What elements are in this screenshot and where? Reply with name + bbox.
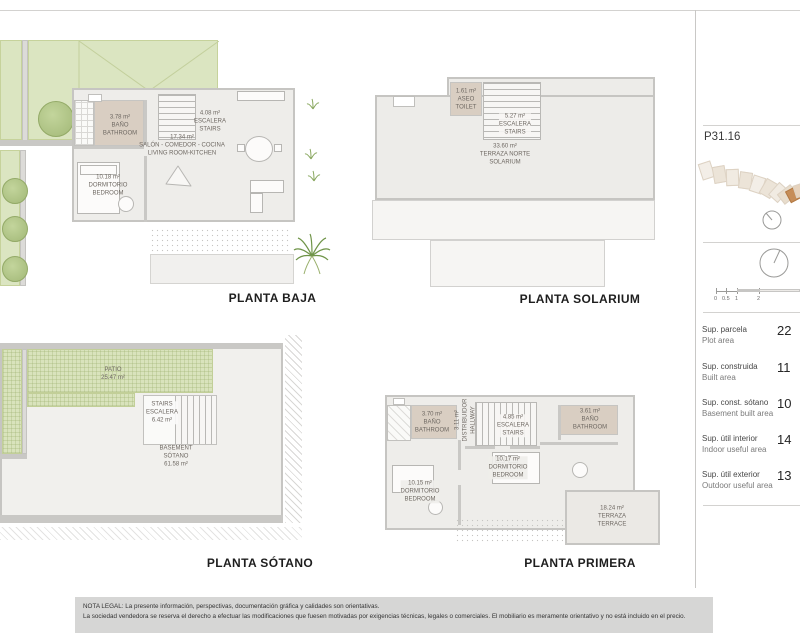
plan-sheet: 3.78 m² BAÑO BATHROOM 4.08 m² ESCALERA S… [0, 0, 800, 640]
title-planta-sotano: PLANTA SÓTANO [180, 556, 340, 570]
room-name-es: ASEO [456, 96, 477, 104]
lounge-chair [163, 164, 193, 190]
room-name-es: DORMITORIO [89, 182, 128, 190]
plan-planta-solarium: 1.61 m² ASEO TOILET 5.27 m² ESCALERA STA… [370, 70, 665, 300]
room-name-es: ESCALERA [499, 121, 531, 129]
room-name-es: BAÑO [573, 416, 607, 424]
room-area: 33.60 m² [480, 143, 530, 151]
plot-id: P31.16 [704, 131, 740, 143]
scale-segment [737, 289, 759, 292]
room-area: 3.61 m² [573, 408, 607, 416]
legal-note: NOTA LEGAL: La presente información, per… [75, 597, 713, 633]
room-label-escalera: STAIRS ESCALERA 6.42 m² [146, 401, 178, 424]
title-planta-solarium: PLANTA SOLARIUM [500, 292, 660, 306]
interior-wall [0, 454, 27, 459]
room-name-es: DORMITORIO [489, 464, 528, 472]
room-area: 10.15 m² [401, 480, 440, 488]
scale-segment [759, 289, 800, 292]
shower-fixture [387, 405, 411, 441]
room-name-en: STAIRS [499, 129, 531, 137]
kitchen-counter [237, 91, 285, 101]
room-name-es: ESCALERA [497, 422, 529, 430]
room-area: 1.61 m² [456, 88, 477, 96]
scale-tick [716, 288, 717, 294]
room-name-es: PATIO [101, 367, 125, 375]
room-label-sotano: BASEMENT SÓTANO 61.58 m² [159, 445, 192, 468]
area-label-en: Basement built area [702, 409, 773, 418]
interior-wall [458, 485, 461, 525]
earth-hatch [0, 527, 302, 540]
room-label-terraza-norte: 33.60 m² TERRAZA NORTE SOLARIUM [480, 143, 530, 166]
north-arrow-icon [760, 208, 784, 232]
room-name-es: SALÓN - COMEDOR - COCINA [139, 142, 225, 150]
room-label-dormitorio1: 10.17 m² DORMITORIO BEDROOM [489, 456, 528, 479]
room-area: 4.85 m² [497, 414, 529, 422]
room-label-escalera: 4.85 m² ESCALERA STAIRS [497, 414, 529, 437]
room-label-dormitorio2: 10.15 m² DORMITORIO BEDROOM [401, 480, 440, 503]
tree-icon [2, 256, 28, 282]
room-name-es: ESCALERA [194, 118, 226, 126]
scale-label: 1 [735, 296, 738, 302]
room-area: 25.47 m² [101, 375, 125, 383]
room-label-bano: 3.78 m² BAÑO BATHROOM [103, 114, 137, 137]
interior-wall [558, 405, 561, 440]
room-label-distribuidor: 3.11 m² DISTRIBUIDOR HALLWAY [454, 398, 477, 441]
legal-line-2: La sociedad vendedora se reserva el dere… [83, 612, 713, 622]
room-area: 4.08 m² [194, 110, 226, 118]
title-planta-baja: PLANTA BAJA [165, 291, 380, 305]
area-value: 13 [777, 468, 791, 483]
area-label-es: Sup. construida [702, 362, 758, 371]
bottom-wall [0, 515, 283, 523]
sofa [250, 180, 284, 193]
stairs-sotano [175, 396, 216, 444]
scale-label: 2 [757, 296, 760, 302]
room-name-en: HALLWAY [470, 398, 478, 441]
interior-wall [465, 446, 495, 449]
interior-wall [540, 442, 618, 445]
north-arrow-icon [757, 246, 791, 280]
area-label-es: Sup. útil interior [702, 434, 758, 443]
tree-icon [2, 216, 28, 242]
room-name-es: DORMITORIO [401, 488, 440, 496]
dining-table [245, 136, 273, 162]
room-area: 61.58 m² [159, 461, 192, 469]
patio-garden [27, 393, 135, 407]
room-name-es: BAÑO [415, 419, 449, 427]
scale-label: 0.5 [722, 296, 730, 302]
planter [572, 462, 588, 478]
room-name-es: TERRAZA NORTE [480, 151, 530, 159]
area-label-es: Sup. parcela [702, 325, 747, 334]
top-rule [0, 10, 800, 11]
sidebar-rule [703, 505, 800, 506]
room-label-escalera: 4.08 m² ESCALERA STAIRS [194, 110, 226, 133]
earth-hatch [285, 335, 302, 523]
shower-fixture [74, 100, 94, 146]
lower-roof [372, 200, 655, 240]
stairs-baja [158, 94, 196, 140]
plot-tile [726, 169, 740, 186]
room-label-terraza: 18.24 m² TERRAZA TERRACE [598, 505, 627, 528]
lower-roof [430, 240, 605, 287]
palm-tree-icon [292, 232, 332, 276]
room-name-en: BEDROOM [401, 496, 440, 504]
area-label-es: Sup. útil exterior [702, 470, 760, 479]
room-area: 6.42 m² [146, 417, 178, 425]
tree-icon [2, 178, 28, 204]
room-name-es: TERRAZA [598, 513, 627, 521]
sofa [250, 193, 263, 213]
room-name-en: BATHROOM [103, 130, 137, 138]
deck-dots [150, 228, 290, 252]
area-value: 10 [777, 396, 791, 411]
scale-tick [726, 288, 727, 294]
room-name-es: SÓTANO [159, 453, 192, 461]
area-value: 11 [777, 360, 791, 375]
room-name-en: STAIRS [146, 401, 178, 409]
room-area: 3.78 m² [103, 114, 137, 122]
room-name-es: BAÑO [103, 122, 137, 130]
plan-planta-primera: 3.70 m² BAÑO BATHROOM 3.11 m² DISTRIBUID… [380, 390, 680, 555]
room-name-en: BEDROOM [489, 472, 528, 480]
room-area: 17.34 m² [139, 134, 225, 142]
interior-wall [74, 146, 144, 149]
room-name-en: STAIRS [497, 430, 529, 438]
sidebar-rule [703, 125, 800, 126]
room-area: 3.70 m² [415, 411, 449, 419]
area-label-es: Sup. const. sótano [702, 398, 768, 407]
chair [274, 144, 282, 152]
room-name-en: BEDROOM [89, 190, 128, 198]
legal-line-1: NOTA LEGAL: La presente información, per… [83, 602, 713, 612]
room-name-es: DISTRIBUIDOR [462, 398, 470, 441]
room-area: 10.17 m² [489, 456, 528, 464]
room-name-en: SOLARIUM [480, 159, 530, 167]
interior-wall [458, 440, 461, 470]
level-tag [88, 94, 102, 102]
room-label-patio: PATIO 25.47 m² [101, 367, 125, 383]
plant-icon [306, 96, 320, 110]
room-label-salon: 17.34 m² SALÓN - COMEDOR - COCINA LIVING… [139, 134, 225, 157]
terrace-deck [150, 254, 294, 284]
room-name-en: TERRACE [598, 521, 627, 529]
area-value: 14 [777, 432, 791, 447]
room-area: 5.27 m² [499, 113, 531, 121]
room-name-en: LIVING ROOM-KITCHEN [139, 150, 225, 158]
room-label-bano2: 3.61 m² BAÑO BATHROOM [573, 408, 607, 431]
plant-icon [307, 168, 321, 182]
room-area: 3.11 m² [454, 398, 462, 441]
title-planta-primera: PLANTA PRIMERA [500, 556, 660, 570]
room-name-en: TOILET [456, 104, 477, 112]
room-area: 10.18 m² [89, 174, 128, 182]
level-tag [393, 96, 415, 107]
pouf [118, 196, 134, 212]
garden-strip [0, 40, 22, 140]
area-label-en: Outdoor useful area [702, 481, 773, 490]
patio-garden [2, 349, 22, 454]
room-name-en: STAIRS [194, 126, 226, 134]
area-value: 22 [777, 323, 791, 338]
chair [237, 144, 245, 152]
sidebar-divider [695, 10, 696, 588]
room-name-en: BASEMENT [159, 445, 192, 453]
area-label-en: Indoor useful area [702, 445, 767, 454]
plan-planta-sotano: PATIO 25.47 m² STAIRS ESCALERA 6.42 m² B… [0, 335, 310, 585]
room-name-es: ESCALERA [146, 409, 178, 417]
plan-planta-baja: 3.78 m² BAÑO BATHROOM 4.08 m² ESCALERA S… [0, 36, 340, 286]
tree-icon [38, 101, 74, 137]
room-area: 18.24 m² [598, 505, 627, 513]
plant-icon [304, 146, 318, 160]
sidebar-rule [703, 312, 800, 313]
area-label-en: Plot area [702, 336, 734, 345]
room-label-bano1: 3.70 m² BAÑO BATHROOM [415, 411, 449, 434]
room-name-en: BATHROOM [415, 427, 449, 435]
room-label-escalera: 5.27 m² ESCALERA STAIRS [499, 113, 531, 136]
room-name-en: BATHROOM [573, 424, 607, 432]
room-label-aseo: 1.61 m² ASEO TOILET [456, 88, 477, 111]
level-tag [393, 398, 405, 405]
interior-wall [510, 446, 540, 449]
deck-dots [455, 518, 563, 544]
scale-label: 0 [714, 296, 717, 302]
room-label-dormitorio: 10.18 m² DORMITORIO BEDROOM [89, 174, 128, 197]
sidebar-rule [703, 242, 800, 243]
interior-wall [144, 156, 147, 222]
area-label-en: Built area [702, 373, 736, 382]
